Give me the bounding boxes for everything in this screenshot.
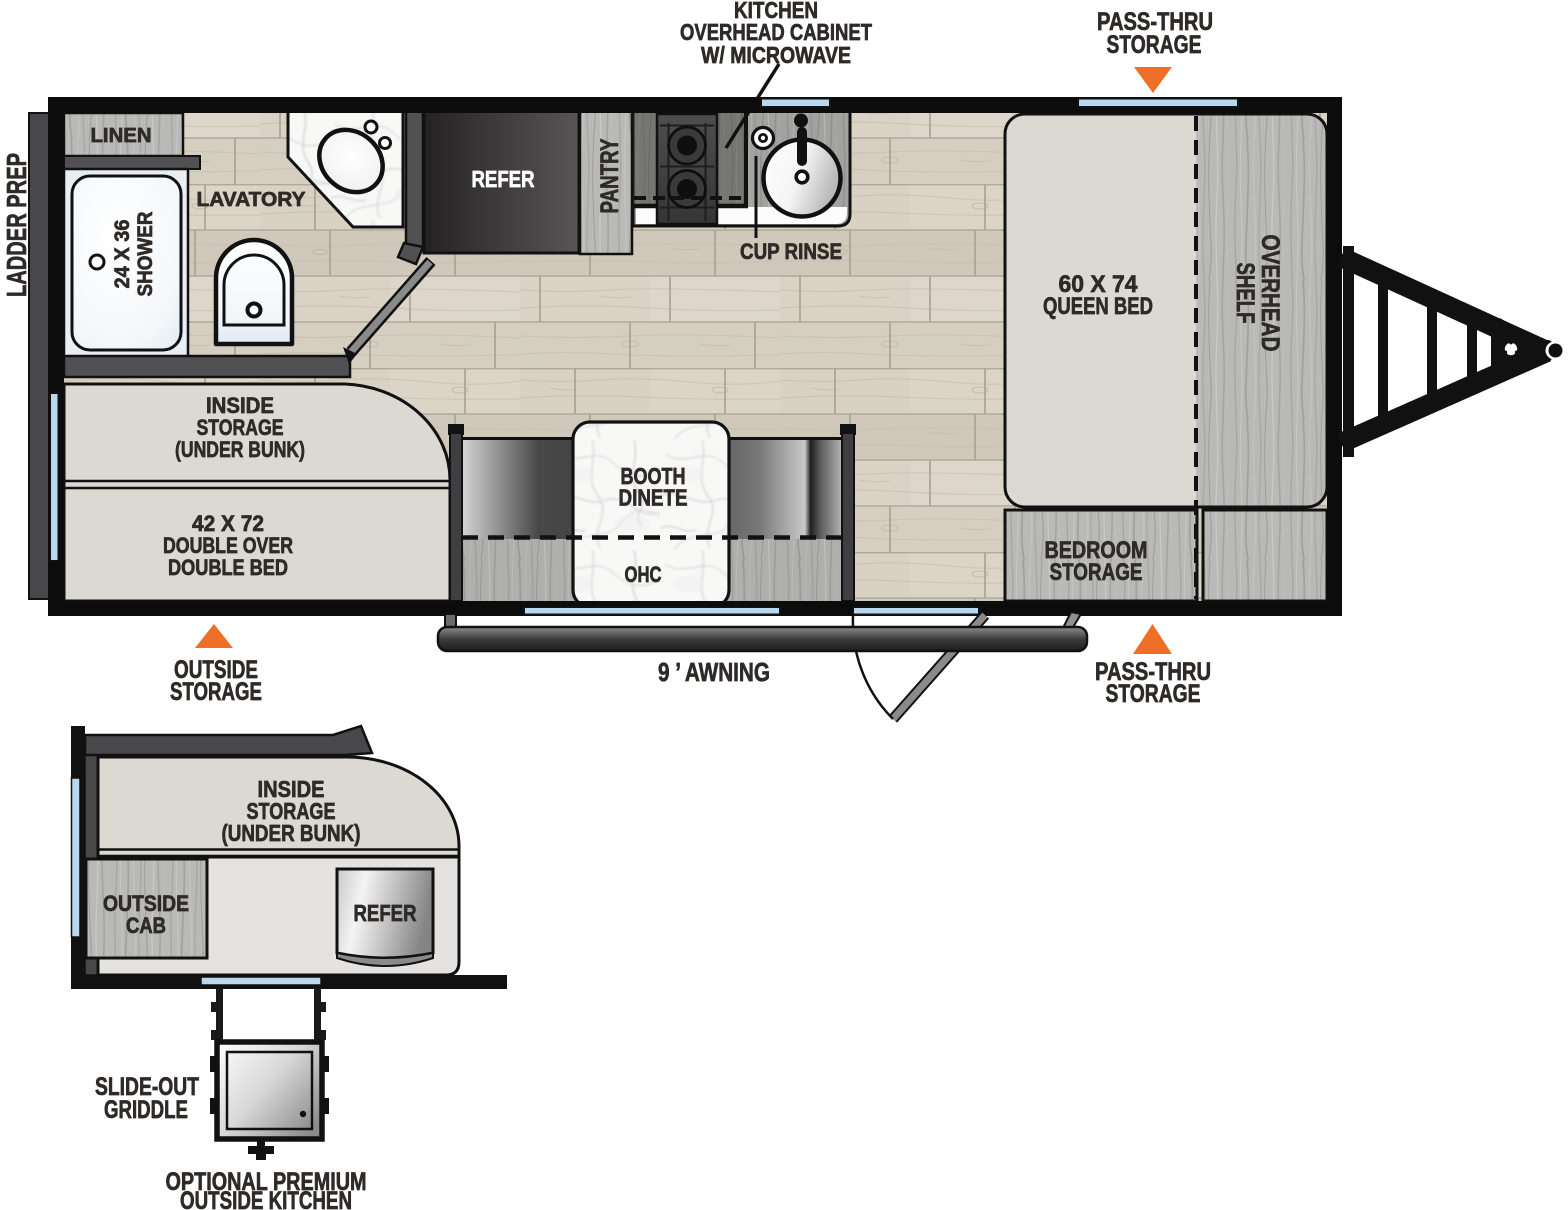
svg-text:24 X 36: 24 X 36	[111, 220, 134, 289]
svg-text:9 ’ AWNING: 9 ’ AWNING	[658, 657, 770, 687]
svg-text:OHC: OHC	[625, 562, 662, 587]
svg-text:SHELF: SHELF	[1231, 263, 1259, 324]
svg-text:W/ MICROWAVE: W/ MICROWAVE	[701, 42, 851, 68]
svg-text:STORAGE: STORAGE	[1106, 680, 1201, 708]
svg-text:CAB: CAB	[126, 913, 166, 938]
svg-text:(UNDER BUNK): (UNDER BUNK)	[175, 437, 305, 462]
svg-text:OVERHEAD: OVERHEAD	[1256, 235, 1284, 352]
svg-text:DOUBLE BED: DOUBLE BED	[168, 555, 288, 580]
svg-text:REFER: REFER	[472, 166, 535, 192]
svg-text:(UNDER BUNK): (UNDER BUNK)	[222, 820, 361, 846]
svg-text:GRIDDLE: GRIDDLE	[104, 1096, 188, 1124]
svg-text:DINETE: DINETE	[619, 485, 688, 511]
svg-text:OUTSIDE KITCHEN: OUTSIDE KITCHEN	[180, 1187, 352, 1210]
svg-text:QUEEN BED: QUEEN BED	[1043, 293, 1153, 320]
svg-text:SHOWER: SHOWER	[134, 212, 157, 297]
svg-text:LINEN: LINEN	[91, 125, 152, 147]
svg-text:LADDER PREP: LADDER PREP	[1, 153, 32, 297]
svg-text:REFER: REFER	[354, 900, 417, 926]
svg-text:STORAGE: STORAGE	[170, 678, 262, 706]
svg-text:PANTRY: PANTRY	[596, 138, 624, 213]
svg-text:CUP RINSE: CUP RINSE	[740, 239, 842, 264]
svg-text:STORAGE: STORAGE	[1107, 31, 1202, 59]
svg-text:LAVATORY: LAVATORY	[197, 189, 307, 211]
svg-text:STORAGE: STORAGE	[1050, 559, 1143, 586]
